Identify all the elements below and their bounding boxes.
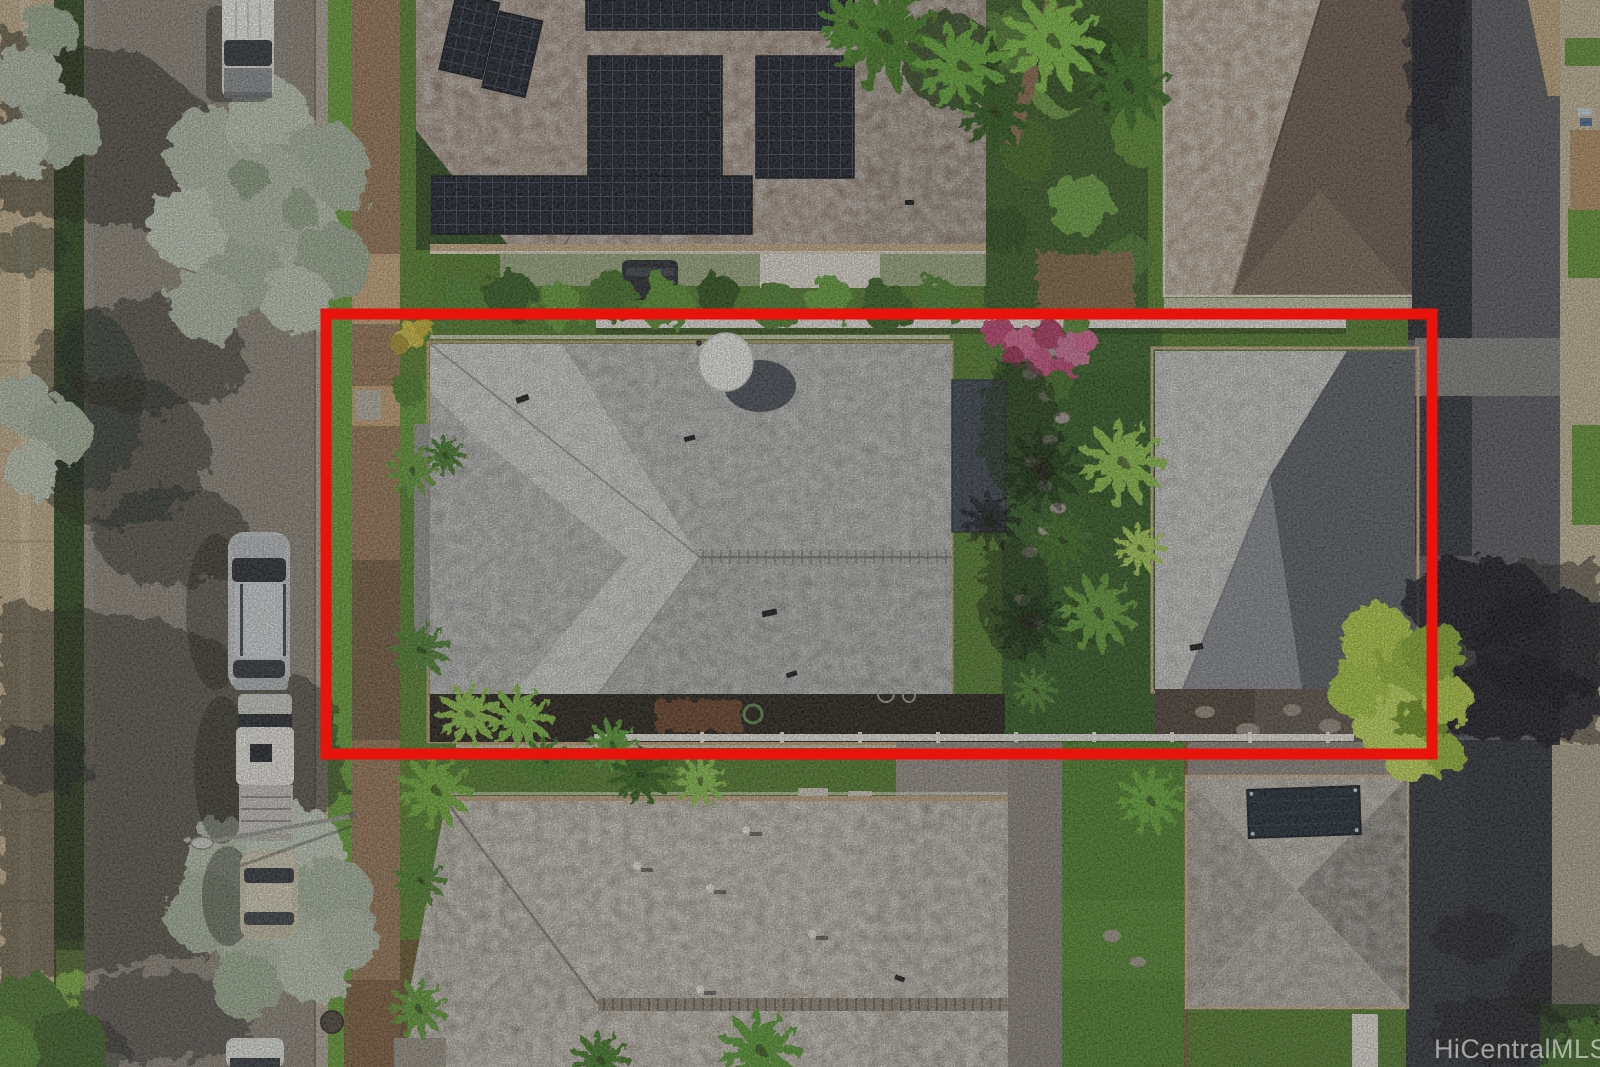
film-grain-light bbox=[0, 0, 1600, 1067]
aerial-listing-photo: HiCentralMLS bbox=[0, 0, 1600, 1067]
watermark: HiCentralMLS bbox=[1434, 1034, 1600, 1065]
aerial-scene bbox=[0, 0, 1600, 1067]
